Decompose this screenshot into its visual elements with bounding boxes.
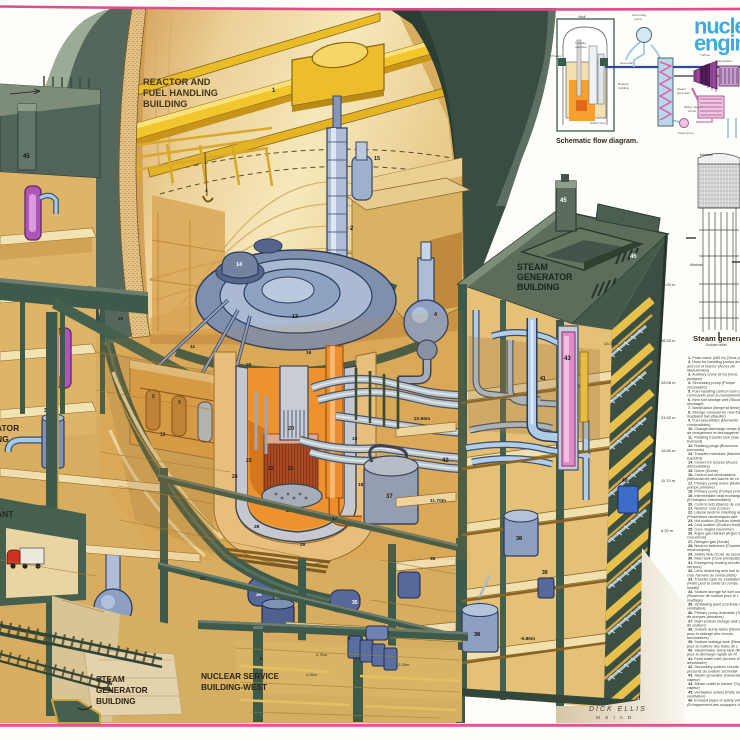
- svg-text:13: 13: [292, 314, 298, 320]
- svg-text:building: building: [618, 86, 629, 90]
- svg-text:NUCLEAR SERVICE: NUCLEAR SERVICE: [201, 672, 280, 681]
- svg-text:35: 35: [352, 600, 358, 606]
- svg-text:3: 3: [205, 188, 208, 194]
- svg-text:ATOR: ATOR: [0, 423, 19, 433]
- svg-text:M S I A D: M S I A D: [596, 715, 633, 720]
- svg-text:17: 17: [332, 516, 338, 522]
- svg-text:43.00 m: 43.00 m: [661, 282, 676, 287]
- svg-text:REACTOR AND: REACTOR AND: [143, 77, 211, 87]
- svg-text:15: 15: [374, 156, 380, 162]
- svg-text:Generator: Generator: [718, 59, 732, 63]
- svg-text:generator: generator: [677, 91, 690, 95]
- svg-text:23.92 m: 23.92 m: [661, 415, 676, 420]
- svg-text:11.70m: 11.70m: [430, 498, 446, 504]
- svg-text:pump: pump: [634, 17, 642, 21]
- svg-text:Vault: Vault: [578, 15, 586, 19]
- svg-text:DICK ELLIS: DICK ELLIS: [589, 706, 647, 713]
- svg-text:GENERATOR: GENERATOR: [96, 686, 148, 695]
- svg-text:NG: NG: [0, 434, 9, 444]
- svg-text:19.80 m: 19.80 m: [661, 448, 676, 453]
- svg-text:43.00 m: 43.00 m: [604, 341, 619, 346]
- svg-text:32: 32: [200, 576, 206, 582]
- svg-text:45: 45: [560, 198, 567, 204]
- svg-text:36.00 m: 36.00 m: [661, 338, 676, 343]
- svg-text:39: 39: [542, 570, 548, 576]
- svg-text:-0.80m: -0.80m: [520, 636, 535, 642]
- svg-text:GENERATOR: GENERATOR: [517, 272, 573, 282]
- svg-text:14: 14: [236, 262, 243, 268]
- svg-text:FUEL HANDLING: FUEL HANDLING: [143, 88, 218, 98]
- svg-text:Sodium outlet: Sodium outlet: [706, 343, 727, 347]
- svg-text:engin: engin: [694, 31, 740, 56]
- svg-text:40: 40: [622, 478, 628, 484]
- svg-text:circuit: circuit: [688, 109, 696, 113]
- svg-text:13.30m: 13.30m: [396, 662, 410, 667]
- svg-text:46: 46: [630, 254, 637, 260]
- svg-text:35: 35: [430, 556, 436, 562]
- svg-text:11: 11: [190, 344, 195, 350]
- svg-text:11.70 m: 11.70 m: [661, 478, 676, 483]
- svg-text:Manhole: Manhole: [700, 153, 713, 157]
- svg-text:BUILDING: BUILDING: [96, 697, 136, 706]
- svg-text:ANT: ANT: [0, 509, 14, 519]
- svg-text:41: 41: [540, 376, 546, 382]
- svg-text:Safety tank: Safety tank: [590, 121, 606, 125]
- svg-text:38: 38: [474, 632, 480, 638]
- svg-text:STEAM: STEAM: [517, 262, 548, 272]
- svg-text:(Echappement des soupapes d: (Echappement des soupapes d: [687, 703, 740, 707]
- svg-text:Steam generat: Steam generat: [693, 334, 740, 343]
- svg-text:26: 26: [246, 362, 252, 368]
- svg-text:28.08 m: 28.08 m: [661, 380, 676, 385]
- svg-text:28: 28: [254, 524, 260, 530]
- svg-text:Manhole: Manhole: [690, 263, 703, 267]
- svg-text:22.90m: 22.90m: [414, 416, 430, 422]
- svg-text:38: 38: [516, 536, 522, 542]
- svg-text:Primary: Primary: [551, 54, 562, 58]
- svg-text:BUILDING: BUILDING: [517, 282, 560, 292]
- svg-text:43: 43: [564, 356, 571, 362]
- svg-text:Schematic flow diagram.: Schematic flow diagram.: [556, 138, 638, 145]
- svg-text:16: 16: [306, 350, 312, 356]
- svg-text:Feed pump: Feed pump: [678, 131, 694, 135]
- svg-text:19: 19: [352, 436, 358, 442]
- svg-text:machine: machine: [575, 45, 587, 49]
- svg-text:BUILDING: BUILDING: [143, 99, 187, 109]
- svg-text:STEAM: STEAM: [96, 675, 125, 684]
- svg-text:30: 30: [118, 316, 124, 322]
- svg-text:BUILDING-WEST: BUILDING-WEST: [201, 683, 267, 692]
- svg-text:45: 45: [23, 154, 30, 160]
- svg-text:5.20 m: 5.20 m: [661, 528, 674, 533]
- svg-text:18: 18: [358, 482, 364, 488]
- svg-text:5: 5: [348, 636, 351, 642]
- svg-text:29: 29: [300, 542, 306, 548]
- svg-text:4.06m: 4.06m: [306, 672, 318, 677]
- svg-text:6: 6: [260, 656, 263, 662]
